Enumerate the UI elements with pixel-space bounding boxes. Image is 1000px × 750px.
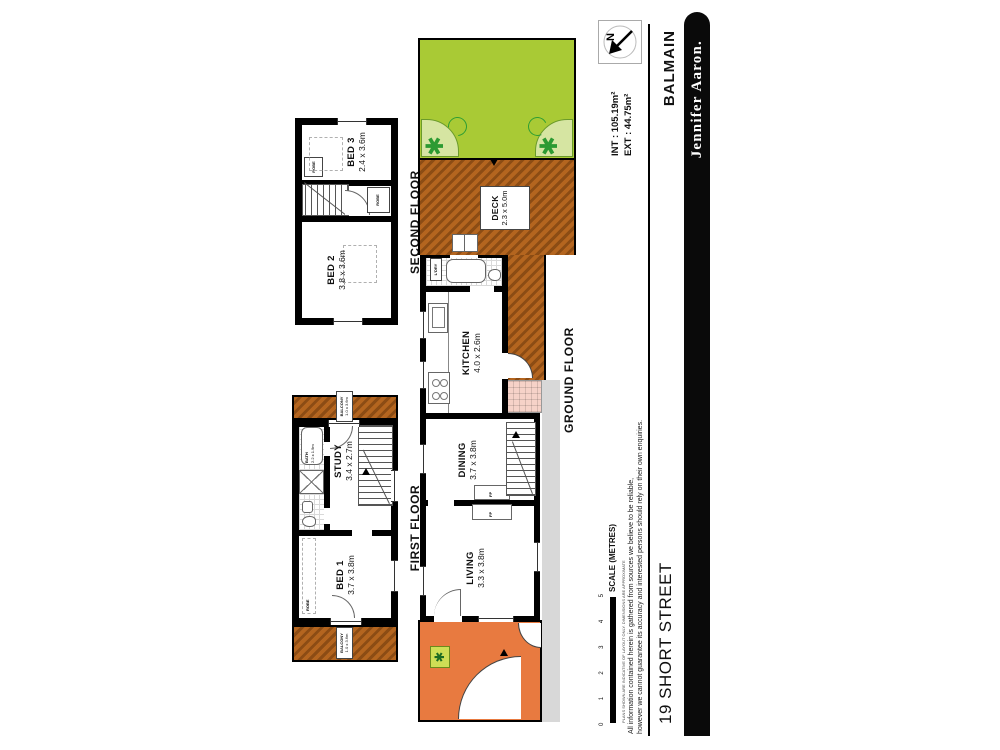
bathtub	[446, 259, 486, 283]
window	[534, 542, 540, 572]
north-arrow-icon: N	[599, 21, 641, 63]
scale-tick: 4	[599, 620, 605, 623]
disclaimer-line2: however we cannot guarantee its accuracy…	[637, 420, 644, 734]
ground-floor-plan: ✱ FP FP LIVING	[418, 38, 580, 722]
bath-dim: 2.2 x 1.9m	[310, 444, 315, 463]
laundry-text: L'DRY	[433, 259, 438, 280]
burner-icon	[440, 379, 448, 387]
disclaimer-line1: All information contained herein is gath…	[628, 478, 635, 734]
scale-ticks: 0 1 2 3 4 5	[599, 594, 605, 726]
living-label: LIVING 3.3 x 3.8m	[466, 528, 487, 608]
room-dim: 4.0 x 2.6m	[473, 313, 483, 393]
room-dim: 3.4 x 2.7m	[345, 429, 355, 493]
plant-icon: ✱	[432, 652, 447, 663]
door-gap	[470, 286, 494, 292]
ground-floor-caption: GROUND FLOOR	[562, 310, 576, 450]
balcony-front-label: BALCONY 1.0 x 3.6m	[336, 391, 353, 422]
house-rear-section: L'DRY KITCHEN 4.0 x 2.6m	[420, 252, 508, 419]
scale-tick: 0	[599, 723, 605, 726]
suburb: BALMAIN	[661, 30, 678, 230]
window	[391, 470, 398, 502]
room-dim: 3.7 x 3.8m	[347, 535, 357, 615]
agency-name: Jennifer Aaron.	[684, 12, 710, 736]
entry-arrow	[500, 649, 508, 656]
bed1-label: BED 1 3.7 x 3.8m	[336, 535, 357, 615]
scale-label: SCALE (METRES)	[608, 524, 617, 592]
room-dim: 2.4 x 3.6m	[358, 124, 368, 180]
footer-rule	[648, 24, 650, 736]
scale-tick: 1	[599, 697, 605, 700]
staircase	[358, 425, 393, 506]
bed2-label: BED 2 3.8 x 3.6m	[327, 230, 348, 310]
toilet	[488, 269, 501, 281]
scale-tick: 2	[599, 671, 605, 674]
front-door-gap	[434, 616, 462, 622]
stove	[428, 372, 450, 404]
second-floor-plan: ROBE ROBE BED 2 3.8 x 3.6m BED 3 2.4 x 3…	[295, 118, 398, 325]
street-address: 19 SHORT STREET	[656, 562, 676, 724]
internal-area: INT : 105.19m²	[609, 92, 622, 156]
window	[478, 616, 514, 622]
fp-label: FP	[488, 492, 493, 497]
room-dim: 3.3 x 3.8m	[477, 528, 487, 608]
garden-arrow	[490, 159, 498, 166]
house-front-section: FP FP LIVING 3.3 x 3.8m DINING 3.7 x 3.8…	[420, 413, 540, 622]
rotated-page: ROBE ROBE BED 2 3.8 x 3.6m BED 3 2.4 x 3…	[0, 0, 1000, 750]
door-gap	[324, 508, 330, 524]
svg-text:N: N	[605, 33, 617, 41]
first-floor-plan: BALCONY 1.0 x 3.6m ROBE BATH 2.2 x 1.9m	[292, 395, 398, 662]
bath-name: BATH	[304, 452, 309, 463]
window	[420, 311, 426, 339]
study-label: STUDY 3.4 x 2.7m	[334, 429, 355, 493]
window	[420, 566, 426, 596]
window	[391, 560, 398, 592]
external-area: EXT : 44.75m²	[622, 92, 635, 156]
robe-bed2: ROBE	[367, 187, 390, 213]
tree-icon: ✱	[538, 136, 562, 156]
burner-icon	[432, 392, 440, 400]
kitchen-label: KITCHEN 4.0 x 2.6m	[462, 313, 483, 393]
window	[420, 444, 426, 474]
burner-icon	[432, 379, 440, 387]
burner-icon	[440, 392, 448, 400]
room-dim: 3.7 x 3.8m	[469, 422, 479, 498]
floorplan-sheet: ROBE ROBE BED 2 3.8 x 3.6m BED 3 2.4 x 3…	[0, 0, 1000, 750]
staircase	[506, 422, 536, 496]
agency-ribbon: Jennifer Aaron.	[684, 12, 710, 736]
disclaimer-micro: PLANS SHOWN ARE INDICATIVE OF LAYOUT ONL…	[621, 560, 626, 723]
robe-label: ROBE	[305, 599, 310, 611]
door-gap	[502, 353, 508, 379]
balcony-dim: 1.0 x 3.6m	[344, 628, 349, 658]
tree-icon: ✱	[424, 136, 448, 156]
room-dim: 2.3 x 5.0m	[501, 187, 510, 229]
window	[420, 361, 426, 389]
balcony-dim: 1.0 x 3.6m	[344, 392, 349, 421]
robe-label: ROBE	[375, 188, 380, 212]
scale-tick: 5	[599, 594, 605, 597]
area-summary: INT : 105.19m² EXT : 44.75m²	[609, 92, 635, 156]
window	[333, 318, 363, 325]
deck-step	[464, 234, 478, 252]
window	[330, 618, 362, 625]
first-floor-body: ROBE BATH 2.2 x 1.9m BED 1 3.7 x 3.8m	[292, 420, 398, 625]
deck-label: DECK 2.3 x 5.0m	[480, 186, 530, 230]
neighbour-strip	[542, 380, 560, 722]
door-gap	[428, 500, 454, 506]
bed2-bed-symbol	[343, 245, 377, 283]
compass: N	[598, 20, 642, 64]
sink-bowl	[432, 307, 445, 328]
balcony-rear-label: BALCONY 1.0 x 3.6m	[336, 627, 353, 659]
bed3-label: BED 3 2.4 x 3.6m	[347, 124, 368, 180]
stair-direction-arrow	[512, 431, 520, 438]
stair-direction-arrow	[362, 468, 370, 475]
scale-tick: 3	[599, 646, 605, 649]
planter-box: ✱	[430, 646, 450, 668]
room-dim: 3.8 x 3.6m	[338, 230, 348, 310]
basin	[302, 501, 313, 513]
bed3-bed-symbol	[309, 137, 343, 171]
toilet	[302, 516, 316, 527]
scale-bar	[610, 597, 616, 723]
shower	[299, 470, 324, 494]
sink	[428, 303, 448, 333]
dining-label: DINING 3.7 x 3.8m	[458, 422, 479, 498]
side-landing	[506, 380, 542, 413]
fp-label: FP	[488, 512, 493, 517]
laundry-label: L'DRY	[430, 258, 442, 281]
